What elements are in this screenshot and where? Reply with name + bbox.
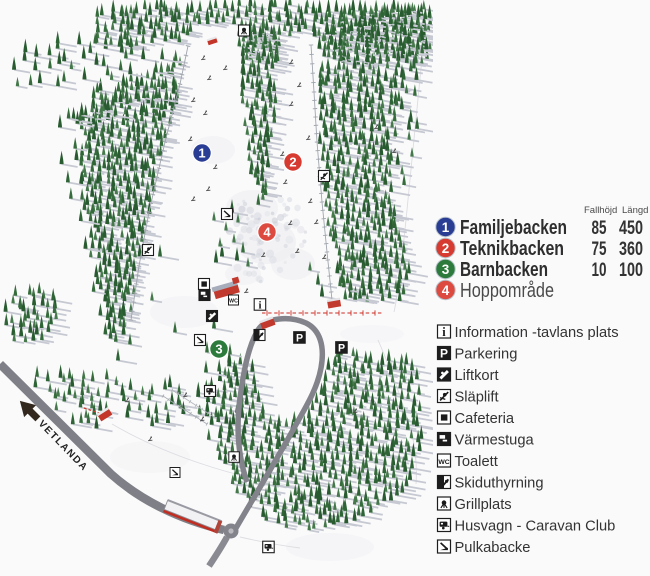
svg-text:P: P — [296, 332, 303, 344]
svg-text:Liftkort: Liftkort — [455, 368, 499, 384]
svg-text:Fallhöjd: Fallhöjd — [584, 205, 617, 216]
svg-text:Hoppområde: Hoppområde — [460, 279, 554, 302]
svg-text:1: 1 — [198, 146, 205, 161]
svg-text:4: 4 — [263, 225, 271, 240]
svg-text:i: i — [258, 300, 261, 312]
svg-text:Toalett: Toalett — [455, 454, 498, 470]
svg-text:75: 75 — [592, 239, 607, 260]
svg-text:Barnbacken: Barnbacken — [460, 258, 548, 281]
svg-text:Skiduthyrning: Skiduthyrning — [455, 475, 544, 491]
svg-text:WC: WC — [229, 299, 238, 305]
svg-text:360: 360 — [619, 239, 643, 260]
svg-text:Teknikbacken: Teknikbacken — [460, 237, 564, 260]
svg-text:Cafeteria: Cafeteria — [455, 411, 515, 427]
svg-text:4: 4 — [442, 283, 450, 298]
svg-text:Längd: Längd — [622, 205, 648, 216]
svg-text:Husvagn - Caravan Club: Husvagn - Caravan Club — [455, 518, 616, 534]
svg-text:85: 85 — [592, 218, 607, 239]
svg-text:WC: WC — [438, 459, 449, 466]
svg-text:2: 2 — [442, 241, 450, 256]
svg-text:100: 100 — [619, 260, 643, 281]
svg-text:Familjebacken: Familjebacken — [460, 216, 567, 239]
svg-text:Pulkabacke: Pulkabacke — [455, 540, 531, 556]
svg-text:10: 10 — [592, 260, 607, 281]
svg-text:P: P — [338, 342, 345, 354]
svg-text:2: 2 — [289, 155, 296, 170]
svg-text:i: i — [442, 325, 446, 339]
svg-text:Värmestuga: Värmestuga — [455, 432, 535, 448]
svg-text:450: 450 — [619, 218, 643, 239]
svg-text:3: 3 — [442, 262, 450, 277]
svg-text:3: 3 — [215, 342, 222, 357]
svg-text:1: 1 — [442, 220, 450, 235]
svg-text:Parkering: Parkering — [455, 346, 518, 362]
svg-text:Grillplats: Grillplats — [455, 497, 512, 513]
svg-text:Släplift: Släplift — [455, 389, 499, 405]
svg-text:P: P — [440, 346, 448, 360]
svg-text:Information -tavlans plats: Information -tavlans plats — [455, 325, 619, 341]
